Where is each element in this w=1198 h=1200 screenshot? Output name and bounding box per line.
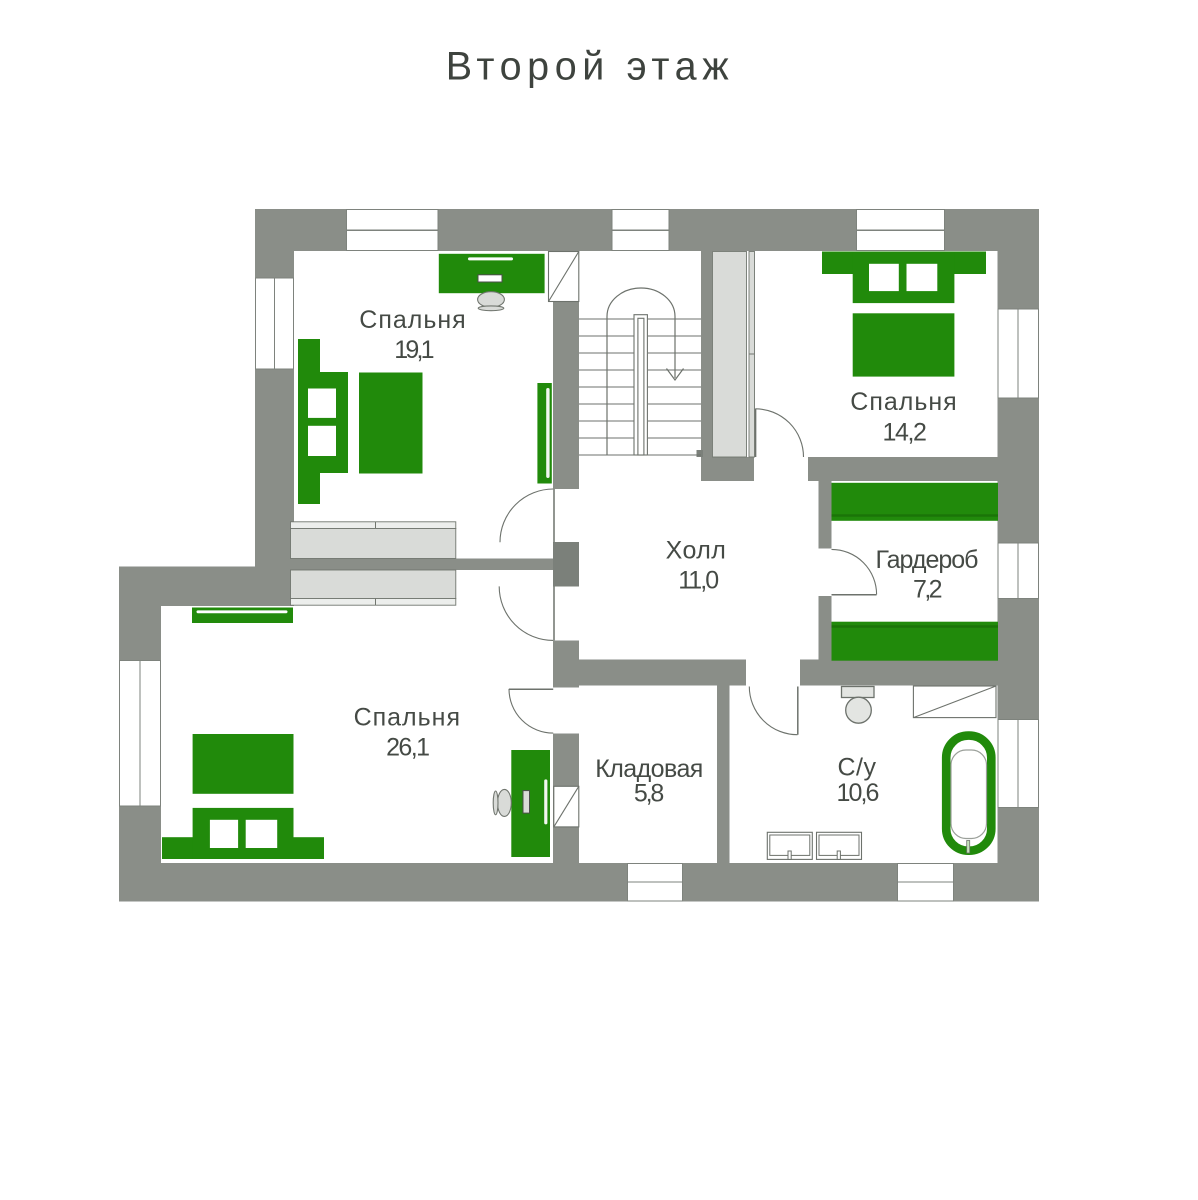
svg-text:Спальня: Спальня (354, 704, 461, 732)
svg-text:11,0: 11,0 (678, 566, 718, 594)
svg-text:10,6: 10,6 (836, 779, 878, 807)
svg-text:14,2: 14,2 (882, 419, 926, 447)
svg-text:Спальня: Спальня (359, 306, 466, 334)
svg-text:Второй этаж: Второй этаж (446, 45, 735, 89)
svg-text:26,1: 26,1 (386, 733, 429, 761)
svg-text:Спальня: Спальня (850, 388, 957, 416)
svg-text:Холл: Холл (666, 537, 727, 565)
svg-text:19,1: 19,1 (394, 336, 433, 364)
svg-text:Гардероб: Гардероб (876, 546, 979, 574)
svg-text:С/у: С/у (838, 753, 877, 781)
svg-text:7,2: 7,2 (913, 576, 942, 604)
svg-text:5,8: 5,8 (634, 780, 663, 808)
